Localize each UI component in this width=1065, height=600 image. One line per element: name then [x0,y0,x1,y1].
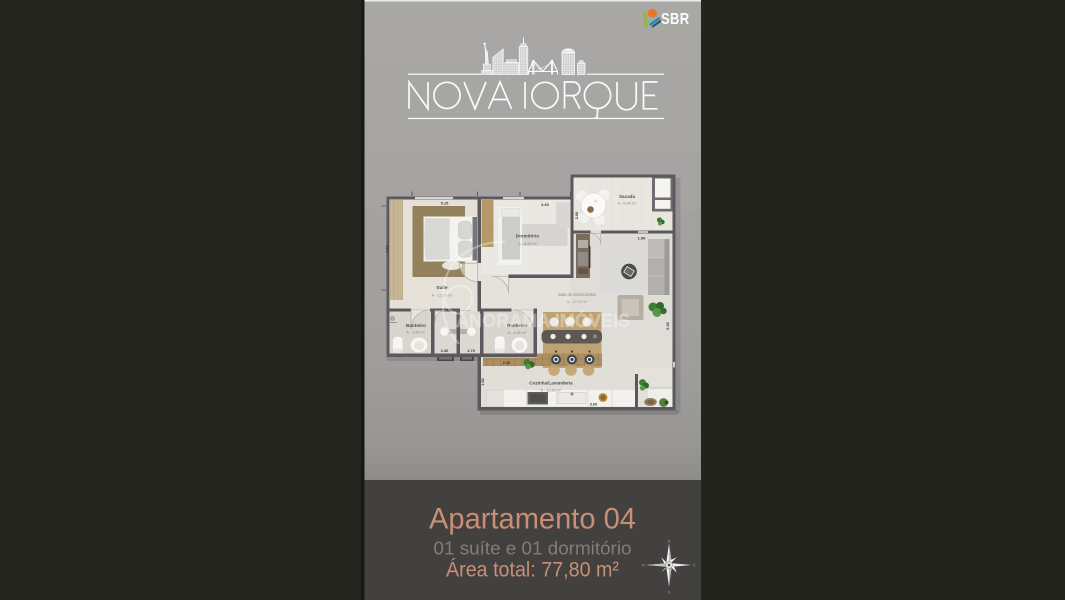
svg-text:2.00: 2.00 [575,212,579,219]
svg-text:A - 6.40 m²: A - 6.40 m² [618,202,637,206]
svg-text:1.90: 1.90 [638,236,647,241]
svg-text:E: E [693,563,696,568]
svg-text:A - 3.60 m²: A - 3.60 m² [406,331,425,335]
svg-text:A - 12.90 m²: A - 12.90 m² [432,294,453,298]
svg-text:3.60: 3.60 [590,402,599,407]
svg-text:S: S [668,590,671,595]
svg-text:01 suíte e 01 dormitório: 01 suíte e 01 dormitório [434,539,632,559]
svg-text:2.40: 2.40 [441,348,450,353]
svg-text:A - 10.80 m²: A - 10.80 m² [541,389,562,393]
svg-text:N: N [668,539,671,544]
svg-text:Cozinha/Lavanderia: Cozinha/Lavanderia [529,381,573,386]
svg-text:2.10: 2.10 [503,360,512,365]
svg-text:6.92: 6.92 [666,322,670,329]
svg-text:Apartamento 04: Apartamento 04 [429,503,636,536]
svg-text:ANORAMA IMÓVEIS: ANORAMA IMÓVEIS [456,310,630,331]
svg-text:A - 4.05 m²: A - 4.05 m² [508,331,527,335]
svg-text:3.90: 3.90 [385,244,390,253]
svg-text:5.15: 5.15 [441,201,450,206]
svg-text:Sacada: Sacada [619,194,636,199]
svg-text:Sala de Estar/Jantar: Sala de Estar/Jantar [558,292,597,297]
svg-text:Área total: 77,80 m²: Área total: 77,80 m² [446,559,619,582]
svg-text:A - 8.90 m²: A - 8.90 m² [518,242,537,246]
svg-text:Suíte: Suíte [436,285,448,290]
svg-text:engenharia: engenharia [662,26,689,31]
svg-text:A - 22.25 m²: A - 22.25 m² [567,300,588,304]
svg-text:W: W [642,563,646,568]
svg-text:1.70: 1.70 [467,348,476,353]
svg-text:1.82: 1.82 [481,378,485,385]
svg-text:Banheiro: Banheiro [406,323,426,328]
svg-text:Dormitório: Dormitório [516,234,540,239]
svg-text:3.30: 3.30 [541,202,550,207]
